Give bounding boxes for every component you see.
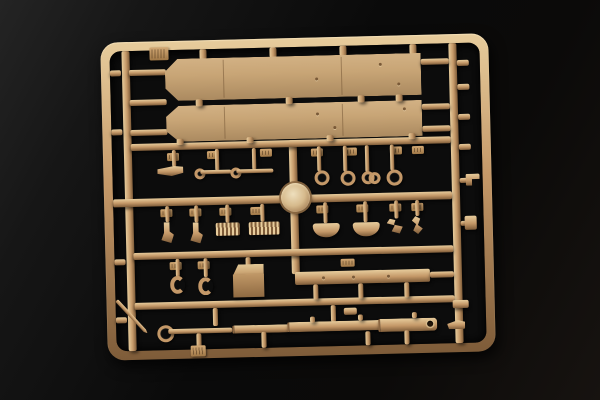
gate-stub <box>459 144 471 150</box>
gate-stem <box>404 330 409 344</box>
linkage-rod <box>200 170 231 175</box>
rivet-hole <box>397 82 400 85</box>
part-number-tab <box>345 147 357 155</box>
gate-stem <box>323 202 328 223</box>
gate-stem <box>196 99 203 106</box>
gate-stem <box>339 46 346 56</box>
stowage-box-face <box>233 274 265 298</box>
gate-stem <box>252 148 257 170</box>
gate-stem <box>404 282 409 297</box>
gate-stub <box>129 69 166 76</box>
gate-stem <box>215 149 220 171</box>
gate-stub <box>422 103 450 110</box>
gate-stem <box>203 258 207 277</box>
grille-block <box>249 221 280 235</box>
gate-stub <box>457 60 469 66</box>
gate-stub <box>111 129 122 135</box>
rivet-hole <box>316 112 319 115</box>
bar-hole <box>387 275 390 278</box>
gate-stem <box>363 201 368 222</box>
rivet-hole <box>403 107 406 110</box>
gate-stem <box>199 49 206 59</box>
small-fitting <box>465 216 477 230</box>
gate-stem <box>176 259 180 277</box>
bar-hole <box>322 276 325 279</box>
fender-panel-upper <box>165 53 422 101</box>
gate-stub <box>421 58 449 65</box>
gate-stub <box>422 125 450 132</box>
gate-stem <box>261 332 266 348</box>
gate-stem <box>286 97 293 104</box>
gate-stem <box>247 137 254 143</box>
gate-stub <box>116 317 127 323</box>
photo-background <box>0 0 600 400</box>
small-block <box>344 308 357 315</box>
rivet-hole <box>315 77 318 80</box>
gate-stem <box>331 305 336 322</box>
gate-stub <box>457 84 469 90</box>
gate-stem <box>365 331 370 345</box>
small-fitting <box>453 300 469 308</box>
barrel-nub <box>412 312 417 318</box>
gate-stem <box>390 145 394 171</box>
gate-stem <box>409 133 416 139</box>
gate-stem <box>165 206 169 222</box>
gate-stem <box>327 135 334 141</box>
gate-stem <box>213 308 218 326</box>
gate-stub <box>130 99 167 106</box>
gate-stem <box>317 146 321 171</box>
gate-stem <box>343 146 347 172</box>
grille-block <box>216 222 240 236</box>
fender-panel-lower <box>166 100 423 142</box>
gate-stem <box>358 95 365 102</box>
gate-stub <box>114 259 125 265</box>
gate-stem <box>172 150 176 167</box>
part-number-tab <box>260 149 272 157</box>
gate-stem <box>394 201 398 219</box>
muzzle-opening <box>427 321 433 327</box>
panel-seam <box>223 60 225 98</box>
barrel-nub <box>358 314 363 320</box>
barrel-nub <box>310 317 315 323</box>
stowage-box <box>233 264 265 298</box>
part-number-tab <box>191 345 206 356</box>
gate-stem <box>409 44 416 54</box>
bar-hole <box>352 276 355 279</box>
panel-seam <box>342 104 344 136</box>
gate-stub <box>458 114 470 120</box>
panel-seam <box>224 107 226 139</box>
rivet-hole <box>333 126 336 129</box>
panel-seam <box>341 57 343 95</box>
gate-stem <box>269 47 276 57</box>
gate-stem <box>260 204 264 222</box>
gate-stem <box>225 205 229 223</box>
gate-stub <box>430 271 454 278</box>
gate-stem <box>313 284 318 299</box>
gate-stem <box>194 205 198 222</box>
rivet-hole <box>379 63 382 66</box>
sprue-letter-tab <box>149 47 168 60</box>
gate-stem <box>358 283 363 298</box>
gate-stub <box>110 70 121 76</box>
gate-stem <box>415 200 419 216</box>
gate-stem <box>365 145 369 172</box>
gate-stub <box>130 129 167 136</box>
part-number-tab <box>412 146 424 154</box>
gate-stem <box>396 94 403 101</box>
sprue <box>94 25 498 367</box>
part-number-tab <box>341 259 355 267</box>
gate-stem <box>177 139 184 145</box>
